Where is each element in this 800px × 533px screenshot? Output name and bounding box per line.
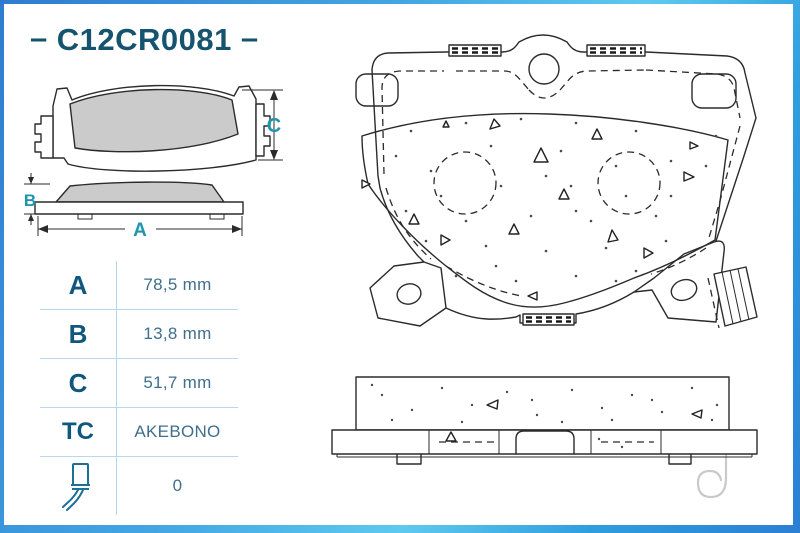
- side-view: [35, 182, 243, 219]
- pad-slab: [356, 377, 729, 430]
- plate-outline-top: [372, 35, 756, 241]
- dimension-c-letter: C: [267, 115, 281, 137]
- dimension-b: B: [24, 173, 50, 225]
- spec-value-a: 78,5 mm: [117, 275, 238, 295]
- locating-tabs: [397, 454, 691, 464]
- plate-strip: [332, 430, 757, 454]
- part-number-prefix-dash: –: [30, 20, 48, 56]
- texture-dots: [395, 118, 718, 283]
- spec-value-b: 13,8 mm: [117, 324, 238, 344]
- front-and-side-view-drawing: C B A: [20, 74, 300, 254]
- center-guide-hole: [529, 54, 559, 84]
- spec-label-a: A: [40, 261, 117, 309]
- piston-circle-right: [598, 152, 660, 214]
- wear-sensor-icon: [40, 457, 117, 515]
- piston-circle-left: [434, 152, 496, 214]
- dimension-a-letter: A: [133, 220, 147, 241]
- spec-table: A 78,5 mm B 13,8 mm C 51,7 mm TC AKEBONO: [40, 261, 238, 515]
- bottom-left-ear: [370, 262, 446, 326]
- spec-row-c: C 51,7 mm: [40, 359, 238, 408]
- part-number-suffix-dash: –: [241, 20, 259, 56]
- dimension-a: A: [38, 216, 242, 241]
- spec-row-wear-sensor: 0: [40, 457, 238, 515]
- spec-value-tc: AKEBONO: [117, 422, 238, 442]
- brake-pad-spec-card: – C12CR0081 – C: [0, 0, 800, 533]
- part-number: – C12CR0081 –: [30, 22, 259, 58]
- bottom-shim-tab: [523, 314, 574, 325]
- front-view: [35, 86, 270, 172]
- spec-label-tc: TC: [40, 408, 117, 456]
- spec-label-c: C: [40, 359, 117, 407]
- bottom-view-drawing: [322, 360, 762, 512]
- spec-label-b: B: [40, 310, 117, 358]
- plate-outline-left: [372, 70, 380, 188]
- spec-row-b: B 13,8 mm: [40, 310, 238, 359]
- card-content: – C12CR0081 – C: [4, 4, 793, 525]
- spec-row-tc: TC AKEBONO: [40, 408, 238, 457]
- spec-value-c: 51,7 mm: [117, 373, 238, 393]
- spec-row-a: A 78,5 mm: [40, 261, 238, 310]
- spec-value-wear-sensor: 0: [117, 476, 238, 496]
- top-left-hole: [356, 74, 398, 106]
- rear-view-drawing: [316, 26, 776, 358]
- dimension-b-letter: B: [24, 191, 36, 210]
- part-number-text: C12CR0081: [57, 22, 232, 58]
